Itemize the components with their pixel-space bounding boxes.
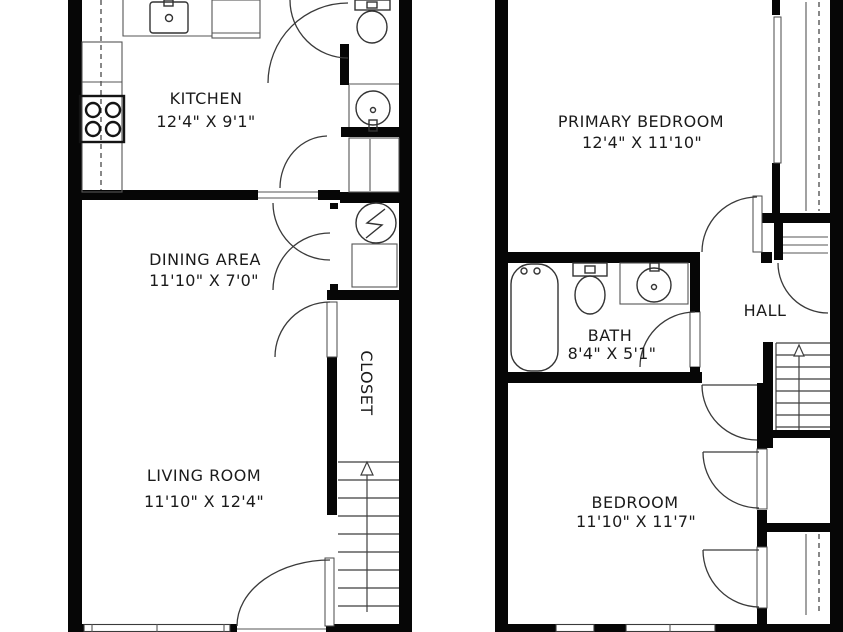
wall-halfbath-west-stub [340,44,349,85]
room-dims-bath: 8'4" X 5'1" [568,344,657,363]
door-arc-closet [275,302,330,357]
toilet-flush [367,2,377,8]
entry-door-leaf [325,558,334,626]
closetB-door-jamb [757,547,767,608]
room-dims-bedroom: 11'10" X 11'7" [576,512,696,531]
wall-utility-bottom [327,290,412,300]
door-arc-utility-lower [273,233,330,290]
room-label-bedroom: BEDROOM [591,493,678,512]
wall-closetA-bottom [767,523,843,532]
room-label-dining: DINING AREA [149,250,261,269]
wall-below-primary-closet [760,213,843,223]
toilet-tank [573,263,607,276]
room-dims-living: 11'10" X 12'4" [144,492,264,511]
toilet-bowl [357,11,387,43]
primary-closet-stub-bottom [772,163,780,213]
toilet-bowl [575,276,605,314]
wall-closet-west [327,357,337,515]
wall-bottom-east [326,624,412,632]
room-label-closet: CLOSET [357,350,376,415]
sink-drain [652,285,657,290]
stove-burner [106,122,120,136]
room-label-bath: BATH [588,326,632,345]
floorplan-page: KITCHEN 12'4" X 9'1" DINING AREA 11'10" … [0,0,843,632]
water-heater-bolt [366,209,385,238]
wall-right-outer [399,0,412,632]
first-floor-plan: KITCHEN 12'4" X 9'1" DINING AREA 11'10" … [68,0,412,632]
primary-closet-stub-top [772,0,780,15]
staircase-first-floor [338,462,399,612]
wall-linen-west [774,223,783,260]
wall-bedroom-east-3 [757,607,767,624]
sink-drain [371,108,376,113]
utility-door-jamb-bottom [330,284,338,290]
toilet-flush [585,266,595,273]
wall-bath-east-upper [690,263,700,312]
sink-faucet [650,263,659,271]
wall-bedroom-east-2 [757,510,767,548]
door-arc-closetA [703,452,759,508]
primary-closet-panel [774,17,781,163]
bathtub [511,264,558,371]
door-arc-primary [702,197,757,252]
wall-bedroom-east-1 [757,383,767,450]
pantry-closet [349,138,399,192]
wall-pantry-bottom [340,192,400,203]
wall-kitchen-dining-east [318,190,340,200]
closetA-door-jamb [757,449,767,509]
wall-hall-bottom [495,372,702,383]
room-dims-kitchen: 12'4" X 9'1" [156,112,255,131]
kitchen-sink-faucet [164,0,173,6]
stove-burner [86,103,100,117]
bath-door-leaf [690,312,700,367]
water-heater [356,203,396,243]
room-label-kitchen: KITCHEN [170,89,243,108]
tub-faucet [521,268,527,274]
refrigerator [212,0,260,38]
second-floor-plan: PRIMARY BEDROOM 12'4" X 11'10" BATH 8'4"… [495,0,843,632]
hvac-unit [352,244,397,287]
wall-corner-stub [761,252,772,263]
room-dims-dining: 11'10" X 7'0" [149,271,259,290]
kitchen-sink-drain [166,15,173,22]
room-dims-primary: 12'4" X 11'10" [582,133,702,152]
wall-bath-east-lower [690,367,700,383]
door-arc-kitchen-outer [268,3,348,83]
wall-halfbath-bottom [341,127,399,137]
door-arc-utility-upper [273,203,330,260]
closet-door-leaf [327,302,337,357]
wall-left-outer [495,0,508,632]
stair-up-arrow [361,462,373,475]
wall-bath-top [495,252,700,263]
floorplan-image: KITCHEN 12'4" X 9'1" DINING AREA 11'10" … [0,0,843,632]
tub-faucet [534,268,540,274]
staircase-second-floor [776,343,830,430]
room-label-living: LIVING ROOM [147,466,261,485]
stair-up-arrow [794,345,804,356]
wall-right-outer [830,0,843,632]
utility-door-jamb-top [330,203,338,209]
wall-closetA-top [767,430,843,438]
door-arc-bedroom [702,385,757,440]
stove-burner [106,103,120,117]
window-bedroom-west [556,625,594,632]
room-label-primary: PRIMARY BEDROOM [558,112,724,131]
stove-burner [86,122,100,136]
room-label-hall: HALL [744,301,787,320]
door-arc-entry [237,560,330,626]
vanity-counter [620,263,688,304]
door-arc-closetB [703,550,759,607]
primary-door-leaf [753,196,762,252]
door-arc-kitchen-opening [280,136,327,188]
